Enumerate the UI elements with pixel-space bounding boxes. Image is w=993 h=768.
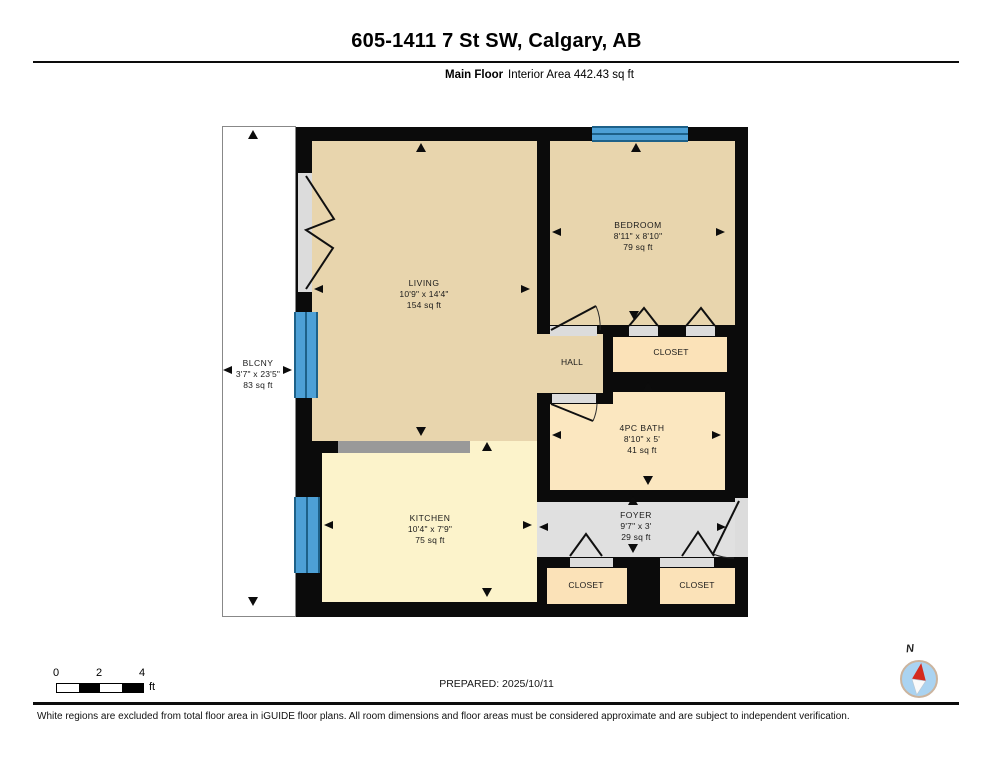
bedroom-door-swing <box>596 306 600 330</box>
dim-arrow-left-icon <box>223 366 232 374</box>
foyer-closet-bifold-left <box>570 534 602 556</box>
interior-area-label: Interior Area 442.43 sq ft <box>508 69 634 81</box>
room-label-bedroom: BEDROOM 8'11" x 8'10" 79 sq ft <box>614 220 663 253</box>
dim-arrow-down-icon <box>248 597 258 606</box>
room-label-bedroom-closet: CLOSET <box>653 347 688 358</box>
prepared-date: PREPARED: 2025/10/11 <box>0 678 993 690</box>
room-label-balcony: BLCNY 3'7" x 23'5" 83 sq ft <box>236 358 280 391</box>
page-title: 605-1411 7 St SW, Calgary, AB <box>0 30 993 53</box>
disclaimer-text: White regions are excluded from total fl… <box>37 711 850 722</box>
dim-arrow-up-icon <box>416 143 426 152</box>
dim-arrow-down-icon <box>629 311 639 320</box>
dim-arrow-up-icon <box>482 442 492 451</box>
bedroom-door-leaf <box>551 306 596 330</box>
dim-arrow-up-icon <box>248 130 258 139</box>
dim-arrow-up-icon <box>628 496 638 505</box>
footer-divider <box>33 702 959 705</box>
bedroom-closet-bifold-right <box>686 308 715 326</box>
room-label-hall: HALL <box>561 357 583 368</box>
dim-arrow-left-icon <box>552 228 561 236</box>
room-label-closet-right: CLOSET <box>679 580 714 591</box>
dim-arrow-left-icon <box>552 431 561 439</box>
dim-arrow-left-icon <box>539 523 548 531</box>
dim-arrow-left-icon <box>314 285 323 293</box>
dim-arrow-down-icon <box>416 427 426 436</box>
balcony-door-symbol <box>306 176 334 289</box>
room-label-living: LIVING 10'9" x 14'4" 154 sq ft <box>399 278 448 311</box>
room-label-foyer: FOYER 9'7" x 3' 29 sq ft <box>620 510 652 543</box>
room-label-kitchen: KITCHEN 10'4" x 7'9" 75 sq ft <box>408 513 452 546</box>
dim-arrow-down-icon <box>628 544 638 553</box>
floor-label: Main Floor <box>445 69 503 81</box>
dim-arrow-right-icon <box>283 366 292 374</box>
dim-arrow-up-icon <box>643 382 653 391</box>
bath-door-swing <box>593 404 597 421</box>
door-symbols-layer <box>222 126 752 620</box>
dim-arrow-right-icon <box>712 431 721 439</box>
header-divider <box>33 61 959 63</box>
entry-door-swing <box>713 554 734 558</box>
floorplan-page: 605-1411 7 St SW, Calgary, AB Main Floor… <box>0 0 993 768</box>
dim-arrow-right-icon <box>521 285 530 293</box>
dim-arrow-up-icon <box>631 143 641 152</box>
dim-arrow-down-icon <box>482 588 492 597</box>
room-label-bath: 4PC BATH 8'10" x 5' 41 sq ft <box>620 423 665 456</box>
dim-arrow-right-icon <box>716 228 725 236</box>
dim-arrow-right-icon <box>523 521 532 529</box>
foyer-closet-bifold-right <box>682 532 714 556</box>
bath-door-leaf <box>551 404 593 421</box>
dim-arrow-left-icon <box>324 521 333 529</box>
compass-icon <box>898 658 940 700</box>
compass-north-label: N <box>905 643 914 656</box>
dim-arrow-right-icon <box>717 523 726 531</box>
room-label-closet-left: CLOSET <box>568 580 603 591</box>
dim-arrow-down-icon <box>643 476 653 485</box>
